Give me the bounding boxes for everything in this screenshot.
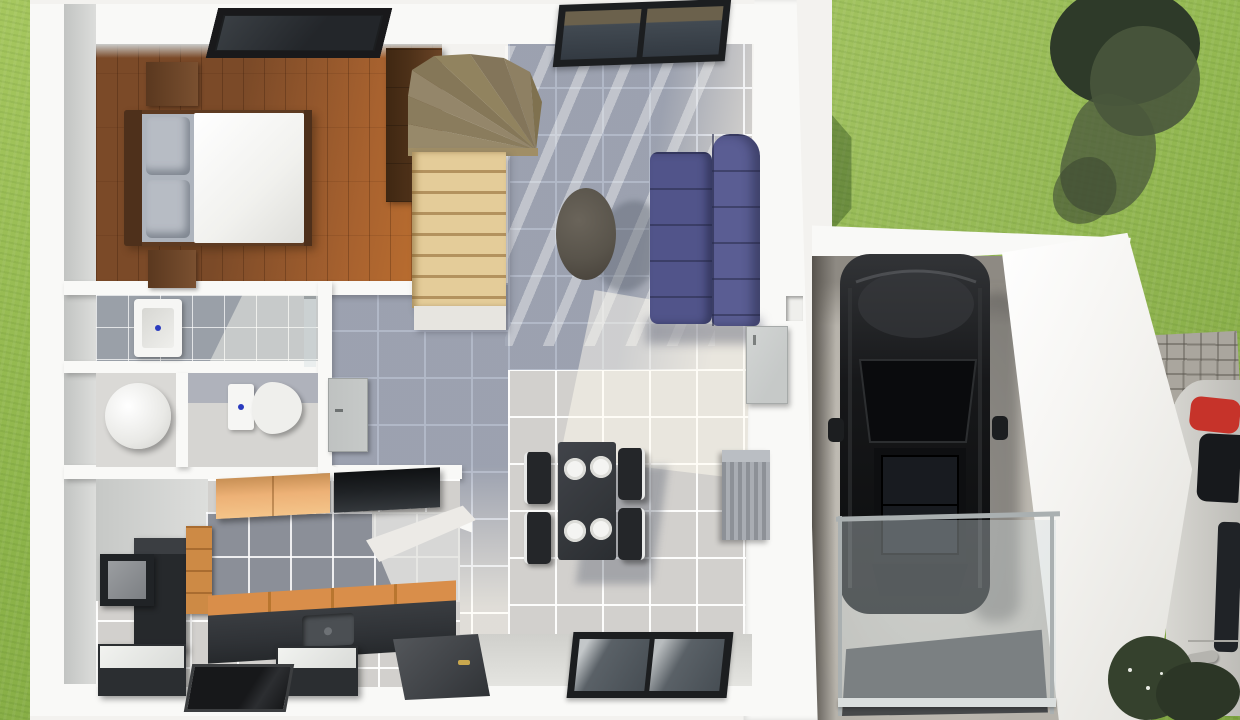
sofa-back: [712, 134, 760, 326]
wall-bath-mid: [64, 361, 320, 373]
shrub-flower-3: [1160, 672, 1163, 675]
wall-screen: [100, 554, 154, 606]
pillow-bottom: [146, 180, 190, 238]
car-hood: [858, 270, 974, 338]
skylight-glass: [217, 16, 381, 50]
south-window: [567, 632, 734, 698]
kitchen-sink: [302, 613, 354, 648]
wall-niche: [786, 296, 803, 321]
entry-door: [390, 634, 490, 700]
car-windshield: [860, 360, 976, 442]
shrubs: [1100, 628, 1240, 720]
washbasin-drain: [155, 325, 161, 331]
white-car-windshield: [1196, 433, 1240, 503]
railing-post-left: [838, 516, 842, 716]
nightstand-bottom: [148, 250, 196, 288]
upper-cabinet-orange-divider: [272, 476, 274, 516]
sink-drain: [324, 627, 332, 635]
stair-flight: [412, 152, 506, 308]
left-wall-outer: [30, 4, 64, 716]
left-wall-face: [64, 4, 96, 716]
fridge-top-face: [134, 538, 186, 554]
washbasin: [134, 299, 182, 357]
shower-glass: [304, 296, 316, 367]
entry-door-handle: [458, 660, 470, 665]
tree: [1010, 0, 1240, 246]
wall-bedroom-bath: [64, 281, 444, 295]
island-1-top: [100, 646, 184, 668]
bed-headboard: [124, 110, 142, 246]
upper-cabinet-orange: [216, 473, 330, 519]
upper-cabinet-black: [334, 467, 440, 513]
bathroom-door: [328, 378, 368, 452]
chair-right-2: [618, 508, 645, 560]
toilet-flush-button: [238, 404, 244, 410]
south-window-pane-left: [574, 639, 649, 691]
sofa-tuft-line: [712, 134, 714, 326]
island-unit-1: [98, 644, 186, 696]
south-window-pane-right: [649, 639, 724, 691]
glass-railing: [836, 512, 1060, 716]
garage-side-door: [746, 326, 788, 404]
bed: [124, 110, 312, 246]
stair-landing: [414, 306, 506, 330]
sideboard: [722, 450, 770, 540]
walkway-top-right: [812, 0, 832, 232]
railing-post-right: [1050, 512, 1054, 714]
round-fixture: [105, 383, 171, 449]
shrub-flower-1: [1128, 668, 1132, 672]
railing-bottom-rail: [838, 698, 1056, 707]
sofa: [648, 134, 762, 330]
north-window-pane-right: [642, 6, 723, 57]
car-mirror-left: [828, 418, 844, 442]
chair-left-2: [524, 512, 551, 564]
north-window-pane-left: [561, 9, 642, 60]
chair-left-1: [524, 452, 551, 504]
duvet: [194, 113, 304, 243]
bed-footboard: [304, 110, 312, 246]
white-car-spoiler: [1188, 395, 1240, 434]
wall-bath-divider: [176, 373, 188, 467]
plate-4: [590, 518, 612, 540]
bathroom-door-handle: [335, 409, 343, 412]
car-mirror-right: [992, 416, 1008, 440]
sofa-seat: [650, 152, 712, 324]
skylight-window: [206, 8, 392, 58]
toilet-bowl: [252, 382, 302, 434]
railing-glass: [840, 520, 1056, 704]
garage-side-door-handle: [753, 335, 756, 345]
wall-screen-panel: [108, 561, 146, 599]
toilet: [228, 382, 304, 438]
north-window: [553, 0, 731, 67]
glass-floor-panel: [184, 664, 294, 712]
chair-right-1: [618, 448, 645, 500]
plate-1: [564, 458, 586, 480]
dining-table: [558, 442, 616, 560]
coffee-table: [556, 188, 616, 280]
sideboard-top: [722, 450, 770, 462]
nightstand-top: [146, 62, 198, 106]
floor-plan-render: [0, 0, 1240, 720]
shrub-flower-2: [1146, 686, 1150, 690]
shrub-2: [1156, 662, 1240, 720]
plate-3: [564, 520, 586, 542]
pillow-top: [146, 117, 190, 175]
plate-2: [590, 456, 612, 478]
stair-winder: [408, 54, 542, 156]
